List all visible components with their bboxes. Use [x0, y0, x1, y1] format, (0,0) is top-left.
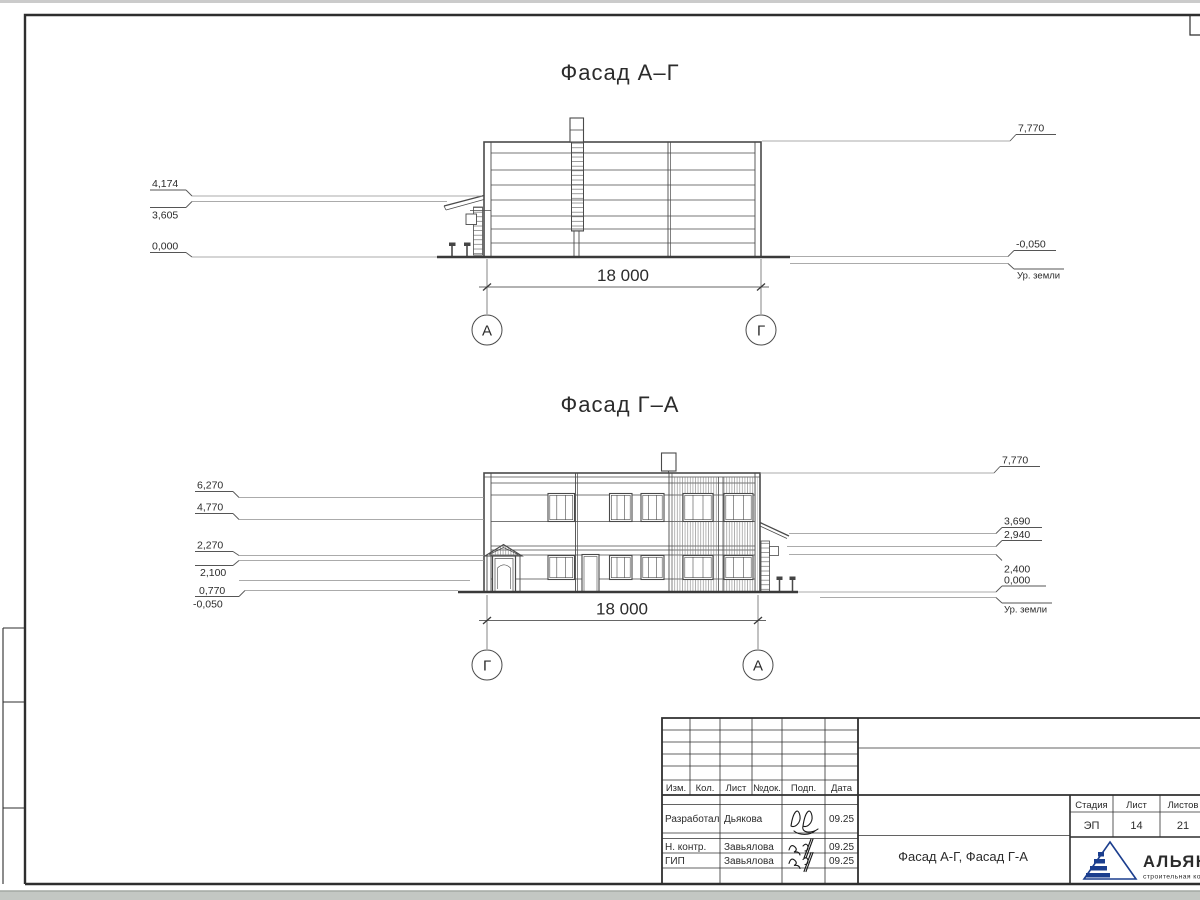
elev-label: 3,605 [152, 210, 178, 222]
staff-name: Дьякова [724, 814, 763, 825]
elev-label: 2,100 [200, 567, 226, 579]
facade-ag-dimension: 18 000 А Г [472, 259, 776, 345]
window [724, 556, 753, 580]
elev-label: 0,770 [199, 585, 225, 597]
signature-scribble [789, 839, 813, 858]
elev-mark: -0,050 [790, 239, 1056, 257]
page-top-edge [0, 0, 1200, 3]
facade-ag-title: Фасад А–Г [561, 60, 680, 85]
window [548, 494, 575, 522]
sheets-label: Листов [1168, 800, 1199, 811]
right-annex [760, 523, 796, 593]
rev-header-cell: Дата [831, 783, 853, 794]
company-subtitle: строительная компания [1143, 874, 1200, 881]
elev-mark: 2,400 [789, 555, 1030, 576]
stage-sheet-table: Стадия Лист Листов ЭП 14 21 [1075, 800, 1198, 832]
axis-letter: А [482, 323, 492, 340]
elev-label: -0,050 [193, 599, 223, 611]
bollards [449, 243, 471, 258]
window [683, 494, 713, 522]
staff-date: 09.25 [829, 814, 854, 825]
sheet-frame [0, 0, 1200, 900]
facade-ga-building [458, 453, 798, 592]
elev-label: 7,770 [1018, 123, 1044, 135]
sheet-value: 14 [1130, 820, 1142, 832]
elev-mark: 2,940 [787, 529, 1042, 547]
facade-ag-view: Фасад А–Г [150, 60, 1064, 345]
doc-title: Фасад А-Г, Фасад Г-А [898, 849, 1028, 864]
elev-mark: 7,770 [762, 123, 1056, 142]
window [683, 556, 713, 580]
staff-role: Н. контр. [665, 842, 706, 853]
staff-role: Разработал [665, 813, 720, 825]
staff-date: 09.25 [829, 856, 854, 867]
frame-left-margin-cells [3, 628, 25, 884]
elev-label: 4,174 [152, 178, 178, 190]
elev-mark: 0,000 [150, 241, 437, 258]
elev-label: 2,940 [1004, 529, 1030, 541]
elev-label: 0,000 [152, 241, 178, 253]
elev-mark: 2,270 [195, 540, 484, 556]
dim-label: 18 000 [596, 600, 648, 619]
elev-label: 3,690 [1004, 516, 1030, 528]
facade-ag-building [437, 118, 790, 257]
elev-mark: 4,174 [150, 178, 482, 196]
title-block: Изм. Кол. Лист №док. Подп. Дата Разработ… [662, 718, 1200, 884]
elev-label: -0,050 [1016, 239, 1046, 251]
utility-box [770, 547, 779, 556]
elev-mark: 0,000 [798, 575, 1046, 593]
window [548, 556, 575, 580]
window [724, 494, 753, 522]
side-door [582, 555, 599, 593]
axis-letter: Г [483, 658, 491, 675]
elev-label: 7,770 [1002, 455, 1028, 467]
rev-header-cell: Кол. [696, 783, 715, 794]
signature-scribble [791, 811, 818, 834]
signature-scribble [789, 853, 813, 872]
rev-header-cell: Изм. [666, 783, 686, 794]
rev-header-cell: Подп. [791, 783, 816, 794]
staff-row: Разработал Дьякова 09.25 [665, 813, 854, 825]
stage-value: ЭП [1084, 820, 1100, 832]
elev-label: 2,270 [197, 540, 223, 552]
elev-mark: 3,605 [150, 202, 447, 222]
chimney [662, 453, 677, 471]
window [610, 556, 633, 580]
frame-corner-box [1190, 15, 1200, 35]
company-logo: АЛЬЯНС строительная компания [1084, 842, 1200, 881]
stage-label: Стадия [1075, 800, 1107, 811]
axis-letter: Г [757, 323, 765, 340]
sheet-label: Лист [1126, 800, 1147, 811]
staff-date: 09.25 [829, 842, 854, 853]
staff-name: Завьялова [724, 856, 774, 867]
window [641, 494, 664, 522]
page-bottom-bar [0, 891, 1200, 900]
wall-ladder [761, 541, 770, 592]
rev-header-cell: Лист [726, 783, 747, 794]
staff-row: Н. контр. Завьялова 09.25 [665, 842, 854, 853]
drawing-sheet: Фасад А–Г [0, 0, 1200, 900]
window [641, 556, 664, 580]
staff-name: Завьялова [724, 842, 774, 853]
staff-role: ГИП [665, 856, 685, 867]
staff-rows: Разработал Дьякова 09.25 Н. контр. Завья… [665, 813, 854, 867]
rev-header-cell: №док. [753, 783, 781, 794]
facade-ga-dimension: 18 000 Г А [472, 595, 773, 680]
elev-mark: 2,100 [195, 561, 484, 580]
elev-label: 0,000 [1004, 575, 1030, 587]
axis-letter: А [753, 658, 763, 675]
ground-level-mark: Ур. земли [820, 598, 1052, 616]
drawing-canvas: Фасад А–Г [0, 0, 1200, 900]
ground-level-mark: Ур. земли [790, 264, 1064, 282]
company-name: АЛЬЯНС [1143, 853, 1200, 871]
facade-ga-view: Фасад Г–А [193, 392, 1052, 680]
ground-level-label: Ур. земли [1017, 271, 1060, 282]
elev-mark: 7,770 [760, 455, 1040, 474]
facade-ga-title: Фасад Г–А [561, 392, 680, 417]
sheets-value: 21 [1177, 820, 1189, 832]
elev-label: 4,770 [197, 502, 223, 514]
elev-label: 6,270 [197, 480, 223, 492]
signatures [789, 811, 818, 871]
elev-mark: 0,770 -0,050 [193, 581, 470, 611]
elev-mark: 6,270 [195, 480, 484, 498]
utility-box [466, 214, 477, 225]
elev-mark: 4,770 [195, 502, 484, 520]
ground-level-label: Ур. земли [1004, 605, 1047, 616]
dim-label: 18 000 [597, 266, 649, 285]
window [610, 494, 633, 522]
staff-row: ГИП Завьялова 09.25 [665, 856, 854, 867]
